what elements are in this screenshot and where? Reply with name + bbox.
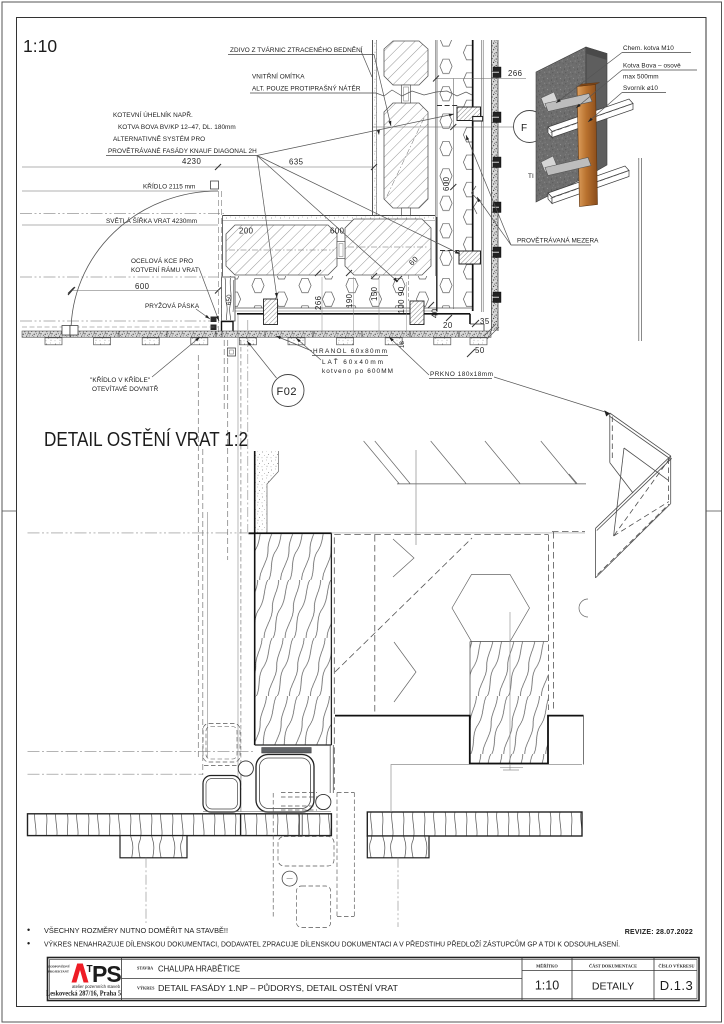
svg-text:PROJEKTANT: PROJEKTANT bbox=[48, 970, 70, 974]
svg-text:VÝKRES NENAHRAZUJE DÍLENSKOU D: VÝKRES NENAHRAZUJE DÍLENSKOU DOKUMENTACI… bbox=[44, 940, 620, 949]
svg-text:635: 635 bbox=[289, 158, 304, 167]
svg-text:OTEVÍTAVÉ DOVNITŘ: OTEVÍTAVÉ DOVNITŘ bbox=[92, 384, 159, 393]
svg-text:4230: 4230 bbox=[182, 157, 202, 166]
svg-text:F02: F02 bbox=[277, 386, 297, 398]
svg-text:Svorník ø10: Svorník ø10 bbox=[623, 85, 658, 92]
svg-text:"KŘÍDLO V KŘÍDLE": "KŘÍDLO V KŘÍDLE" bbox=[90, 375, 150, 384]
svg-text:VNITŘNÍ OMÍTKA: VNITŘNÍ OMÍTKA bbox=[252, 72, 305, 81]
svg-text:100: 100 bbox=[397, 299, 406, 314]
svg-text:D.1.3: D.1.3 bbox=[660, 978, 694, 993]
svg-text:VÝKRES: VÝKRES bbox=[137, 986, 155, 991]
svg-text:CHALUPA HRABĚTICE: CHALUPA HRABĚTICE bbox=[158, 964, 240, 974]
svg-text:Leskovecká 287/16, Praha 5: Leskovecká 287/16, Praha 5 bbox=[46, 991, 122, 998]
svg-text:20: 20 bbox=[443, 321, 453, 330]
svg-text:190: 190 bbox=[345, 293, 354, 308]
svg-text:PRYŽOVÁ PÁSKA: PRYŽOVÁ PÁSKA bbox=[145, 301, 200, 310]
svg-text:ALT. POUZE PROTIPRAŠNÝ NÁTĚR: ALT. POUZE PROTIPRAŠNÝ NÁTĚR bbox=[252, 84, 361, 93]
svg-text:DETAILY: DETAILY bbox=[592, 981, 634, 993]
svg-text:DETAIL FASÁDY 1.NP – PŮDORYS,: DETAIL FASÁDY 1.NP – PŮDORYS, DETAIL OST… bbox=[158, 982, 398, 993]
svg-text:40: 40 bbox=[431, 308, 440, 318]
svg-text:KOTEVNÍ ÚHELNÍK NAPŘ.: KOTEVNÍ ÚHELNÍK NAPŘ. bbox=[113, 110, 193, 119]
svg-text:266: 266 bbox=[314, 295, 323, 310]
svg-text:PRKNO 180x18mm: PRKNO 180x18mm bbox=[430, 371, 493, 378]
svg-text:max 500mm: max 500mm bbox=[623, 74, 659, 81]
svg-text:KŘÍDLO 2115 mm: KŘÍDLO 2115 mm bbox=[143, 182, 195, 191]
svg-text:PROVĚTRÁVANÉ FASÁDY KNAUF DIAG: PROVĚTRÁVANÉ FASÁDY KNAUF DIAGONAL 2H bbox=[108, 146, 257, 155]
svg-text:kotveno po 600MM: kotveno po 600MM bbox=[322, 368, 393, 375]
svg-text:266: 266 bbox=[508, 69, 523, 78]
svg-text:•: • bbox=[27, 939, 30, 949]
svg-text:18: 18 bbox=[400, 340, 406, 348]
svg-text:SVĚTLÁ ŠÍŘKA VRAT 4230mm: SVĚTLÁ ŠÍŘKA VRAT 4230mm bbox=[106, 216, 197, 225]
svg-text:F: F bbox=[521, 123, 527, 134]
svg-text:1:10: 1:10 bbox=[23, 36, 57, 56]
svg-text:DETAIL OSTĚNÍ VRAT 1:2: DETAIL OSTĚNÍ VRAT 1:2 bbox=[44, 428, 248, 451]
svg-text:600: 600 bbox=[442, 176, 451, 191]
svg-text:atelier pozemních staveb: atelier pozemních staveb bbox=[72, 984, 120, 989]
svg-text:REVIZE: 28.07.2022: REVIZE: 28.07.2022 bbox=[625, 929, 693, 936]
svg-text:ALTERNATIVNĚ SYSTÉM PRO: ALTERNATIVNĚ SYSTÉM PRO bbox=[113, 134, 205, 143]
svg-text:90: 90 bbox=[397, 286, 406, 296]
svg-text:HRANOL 60x80mm: HRANOL 60x80mm bbox=[313, 348, 387, 355]
svg-text:PROVĚTRÁVANÁ MEZERA: PROVĚTRÁVANÁ MEZERA bbox=[517, 236, 599, 245]
svg-text:STAVBA: STAVBA bbox=[137, 966, 153, 971]
svg-text:35: 35 bbox=[480, 317, 490, 326]
svg-text:1:10: 1:10 bbox=[535, 979, 559, 993]
svg-text:ČÍSLO VÝKRESU: ČÍSLO VÝKRESU bbox=[658, 964, 695, 969]
svg-text:600: 600 bbox=[135, 282, 150, 291]
svg-text:ZDIVO Z TVÁRNIC ZTRACENÉHO BED: ZDIVO Z TVÁRNIC ZTRACENÉHO BEDNĚNÍ bbox=[230, 45, 363, 54]
svg-text:KOTVENÍ RÁMU VRAT: KOTVENÍ RÁMU VRAT bbox=[131, 265, 199, 274]
svg-text:Chem. kotva M10: Chem. kotva M10 bbox=[623, 45, 674, 52]
svg-text:600: 600 bbox=[330, 227, 345, 236]
svg-text:TI: TI bbox=[528, 173, 534, 180]
svg-text:650: 650 bbox=[227, 294, 233, 305]
svg-text:KOTVA BOVA BV/KP 12–47, DL. 18: KOTVA BOVA BV/KP 12–47, DL. 180mm bbox=[118, 124, 236, 131]
svg-text:Kotva Bova – osově: Kotva Bova – osově bbox=[623, 63, 681, 70]
svg-text:ZODPOVĚDNÝ: ZODPOVĚDNÝ bbox=[48, 964, 71, 969]
svg-text:200: 200 bbox=[239, 227, 254, 236]
svg-text:50: 50 bbox=[475, 346, 485, 355]
svg-text:•: • bbox=[27, 925, 30, 935]
svg-text:MĚŘÍTKO: MĚŘÍTKO bbox=[536, 964, 558, 969]
svg-text:VŠECHNY ROZMĚRY NUTNO DOMĚŘIT: VŠECHNY ROZMĚRY NUTNO DOMĚŘIT NA STAVBĚ!… bbox=[44, 926, 228, 935]
svg-text:ČÁST DOKUMENTACE: ČÁST DOKUMENTACE bbox=[589, 964, 637, 969]
svg-text:150: 150 bbox=[370, 286, 379, 301]
svg-text:OCELOVÁ KCE PRO: OCELOVÁ KCE PRO bbox=[131, 256, 193, 265]
